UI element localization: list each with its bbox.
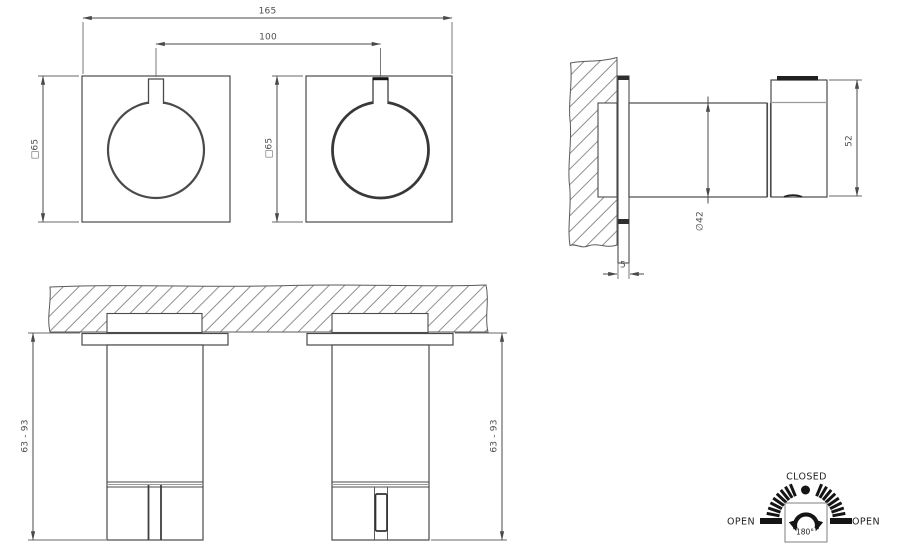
dim-plate-size-left-label: □65: [32, 139, 41, 160]
front-view: [38, 18, 452, 222]
right-knob-tab-face: [376, 494, 388, 531]
left-inwall-box: [107, 314, 202, 333]
open-right-bar: [830, 518, 852, 524]
dim-plate-size-right-label: □65: [266, 138, 275, 159]
technical-drawing-page: 165 100 □65 □65 ∅42 52 5 63 - 93 63 - 93…: [0, 0, 900, 560]
closed-label: CLOSED: [786, 472, 827, 482]
section-view: [28, 285, 507, 540]
closed-position-dot: [801, 486, 810, 495]
open-left-label: OPEN: [727, 517, 755, 527]
dim-plate-thickness-label: 5: [620, 261, 626, 270]
left-body: [107, 345, 203, 540]
handle-tab-side: [777, 76, 818, 81]
side-view: [569, 58, 862, 280]
left-flange: [82, 334, 228, 346]
right-knob: [333, 102, 429, 198]
inwall-body: [598, 103, 617, 197]
open-right-label: OPEN: [852, 517, 880, 527]
handle-symbol-box: [785, 503, 827, 542]
right-flange: [307, 334, 453, 346]
dim-diameter-label: ∅42: [697, 211, 706, 231]
left-knob: [108, 102, 204, 198]
drawing-linework: [0, 0, 900, 560]
wall-plate: [618, 76, 629, 263]
valve-cylinder: [629, 103, 767, 197]
open-left-bar: [760, 518, 782, 524]
dim-depth-range-right-label: 63 - 93: [491, 419, 500, 452]
dim-center-distance-label: 100: [259, 34, 277, 43]
right-inwall-box: [332, 314, 428, 333]
dim-handle-height-label: 52: [846, 135, 855, 147]
rotation-angle-label: 180°: [796, 528, 814, 536]
dim-depth-range-left-label: 63 - 93: [22, 419, 31, 452]
handle-side: [771, 80, 827, 197]
dim-overall-width-label: 165: [259, 8, 277, 17]
